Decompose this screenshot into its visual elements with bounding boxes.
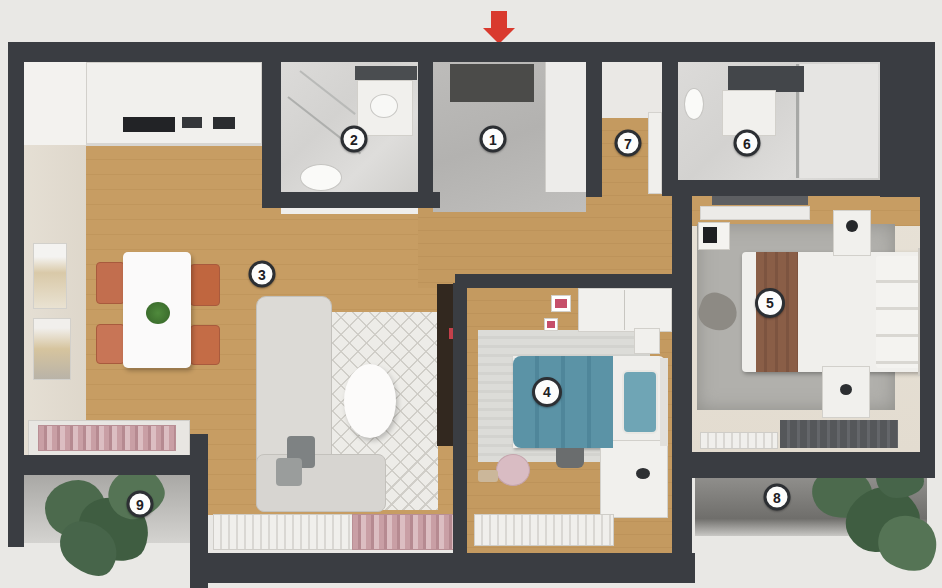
kitchen-counter (86, 62, 262, 146)
laptop (698, 222, 730, 250)
wall-right (920, 190, 935, 458)
window-bench (700, 206, 810, 220)
living-room-curtain (352, 514, 466, 550)
window-seat-curtains (38, 425, 176, 451)
wall-bottom (190, 553, 695, 583)
entrance-closet (545, 62, 587, 192)
wardrobe-divider (624, 290, 625, 330)
kids-room-radiator (474, 514, 614, 546)
room-marker-1: 1 (480, 126, 507, 153)
master-radiator (700, 432, 778, 449)
wall-kids-room-top (455, 274, 692, 288)
nightstand-decor (840, 384, 852, 395)
wall-bathroom2-bottom (662, 180, 880, 196)
kids-wall-frame (544, 318, 558, 331)
bathroom-sink (370, 94, 398, 118)
room-marker-7: 7 (615, 130, 642, 157)
room-marker-6: 6 (734, 130, 761, 157)
dining-chair (190, 264, 220, 306)
wall-kids-room-left (453, 283, 467, 553)
wall-art-frame-1 (33, 243, 67, 309)
table-plant (146, 302, 170, 324)
room-marker-3: 3 (249, 261, 276, 288)
toilet (300, 164, 342, 191)
kids-bed-pillow (622, 370, 658, 434)
kids-desk (600, 440, 668, 518)
wall-art-frame-2 (33, 318, 71, 380)
wall-master-bottom (672, 452, 935, 478)
doormat (450, 64, 534, 102)
cooktop (123, 117, 175, 132)
kitchen-appliance (213, 117, 235, 129)
wardrobe (578, 288, 672, 332)
hallway-door (648, 112, 662, 194)
desk-item (636, 468, 650, 479)
room-marker-2: 2 (341, 126, 368, 153)
wall-top (8, 42, 935, 62)
wall-master-left (672, 195, 692, 583)
kids-bed-headboard (660, 358, 668, 446)
room-marker-4: 4 (532, 377, 562, 407)
floor-plan-scene: 1 2 3 4 5 6 7 8 9 (0, 0, 942, 588)
bathroom-counter (355, 66, 417, 80)
wall-top-right-block (880, 42, 935, 197)
wall-balcony2-top (8, 455, 198, 475)
pouf (496, 454, 530, 486)
toilet-2 (684, 88, 704, 120)
kids-nightstand (634, 328, 660, 354)
bed-foot-runner (780, 420, 898, 448)
entrance-arrow-shaft (491, 11, 507, 29)
master-bed-pillows (876, 256, 920, 368)
dining-chair (190, 325, 220, 365)
toys (478, 470, 498, 482)
sofa-cushion (276, 458, 302, 486)
nightstand (833, 210, 871, 256)
bathroom2-counter (728, 66, 804, 92)
dining-chair (96, 262, 125, 304)
kids-wall-frame (551, 295, 571, 312)
kids-bed-blanket (513, 356, 613, 448)
window-sill (712, 196, 808, 205)
dining-chair (96, 324, 125, 364)
kitchen-sink (182, 117, 202, 128)
wall-entrance-right (586, 42, 602, 197)
wall-hallway-right (662, 42, 678, 192)
room-marker-5: 5 (755, 288, 785, 318)
shower-area (800, 64, 878, 178)
lamp (846, 220, 858, 232)
wall-entrance-left (418, 42, 433, 202)
wall-bathroom-bottom (262, 192, 440, 208)
room-marker-8: 8 (764, 484, 791, 511)
room-marker-9: 9 (127, 491, 154, 518)
coffee-table (344, 364, 396, 438)
wall-bathroom-left (262, 42, 281, 202)
